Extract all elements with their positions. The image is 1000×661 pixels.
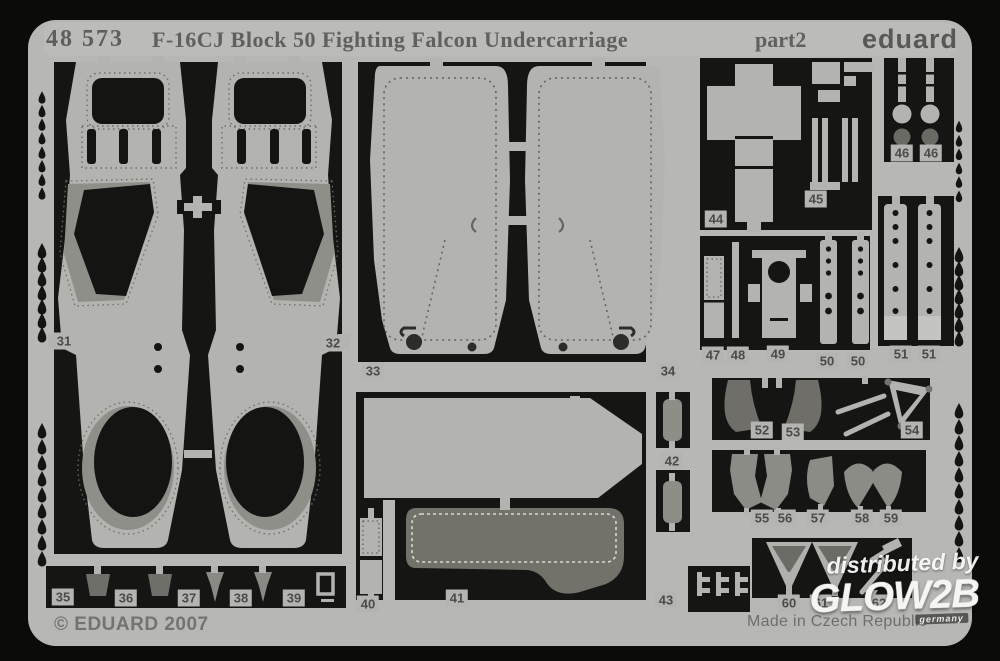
part-33-gear-door-panel (370, 58, 510, 354)
part-34-gear-door-panel (525, 58, 665, 354)
part-47-plate (704, 256, 724, 338)
part-40-strip (360, 508, 382, 602)
fret-artwork (0, 0, 1000, 661)
part-48-strip (732, 242, 739, 338)
product-photo-pe-fret: 48 573 F-16CJ Block 50 Fighting Falcon U… (0, 0, 1000, 661)
